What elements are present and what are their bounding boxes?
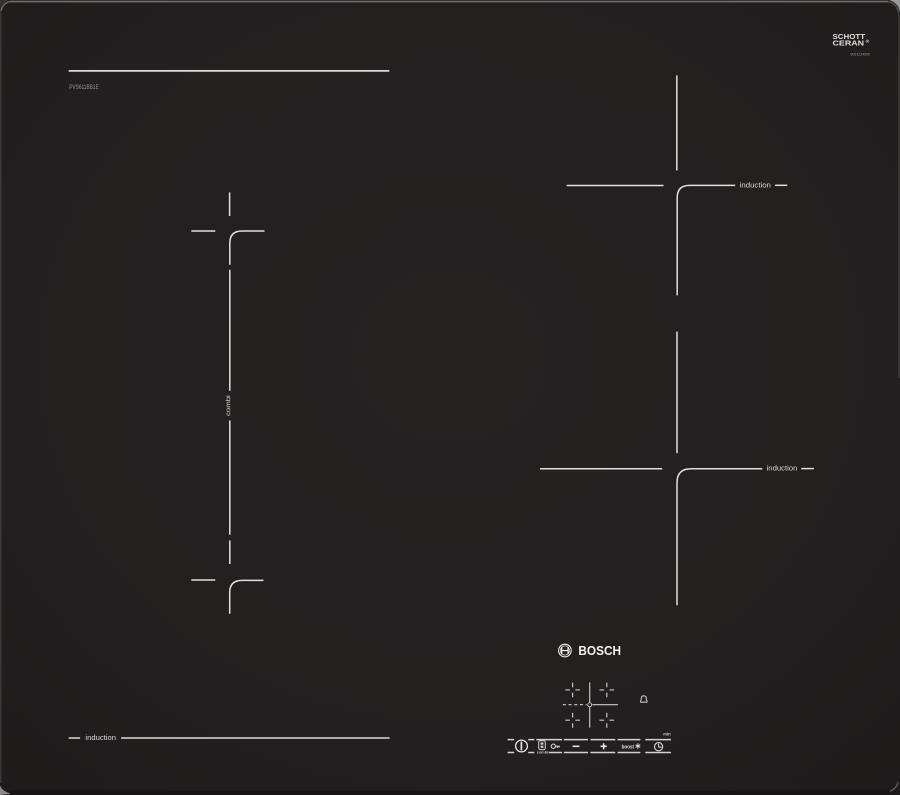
svg-text:BOSCH: BOSCH	[578, 643, 621, 658]
svg-text:CERAN: CERAN	[833, 41, 865, 48]
svg-text:combi: combi	[537, 751, 548, 755]
svg-text:combi: combi	[225, 395, 232, 416]
svg-text:min: min	[663, 732, 671, 737]
svg-text:induction: induction	[740, 180, 771, 189]
svg-text:PVS611BB1E: PVS611BB1E	[69, 85, 99, 91]
svg-text:induction: induction	[85, 733, 116, 742]
svg-text:9001234909: 9001234909	[851, 53, 871, 57]
svg-text:boost: boost	[622, 744, 635, 750]
svg-text:®: ®	[866, 38, 870, 45]
svg-text:induction: induction	[767, 464, 798, 473]
